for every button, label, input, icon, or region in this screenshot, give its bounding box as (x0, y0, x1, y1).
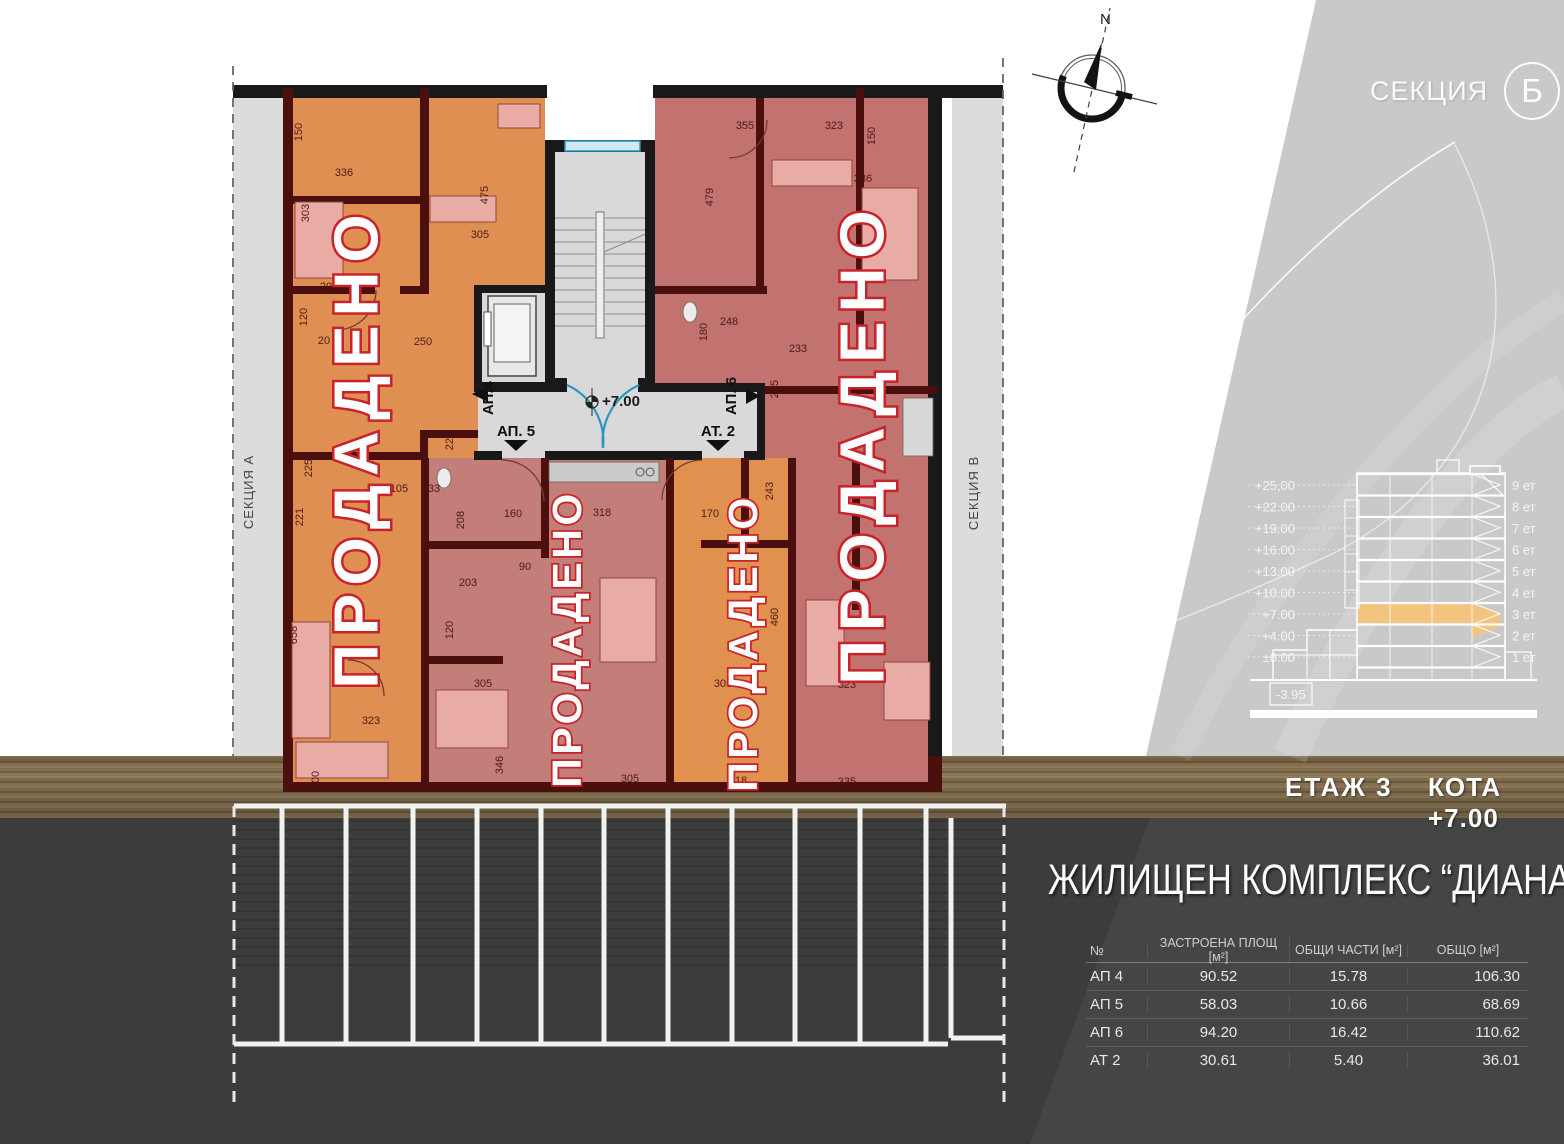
dimension-label: 150 (866, 127, 878, 145)
parking-stalls (234, 806, 1006, 1108)
unit-label-ap6: АП. 6 (723, 377, 740, 415)
total-area: 36.01 (1408, 1052, 1528, 1069)
table-header-row: № ЗАСТРОЕНА ПЛОЩ [м²] ОБЩИ ЧАСТИ [м²] ОБ… (1086, 936, 1528, 962)
total-area: 106.30 (1408, 968, 1528, 985)
drawing-sheet: N СЕКЦИЯ А СЕКЦИЯ В (0, 0, 1564, 1144)
section-floor-label: 2 ет (1512, 629, 1536, 644)
unit-id: АП 4 (1086, 968, 1148, 985)
dimension-label: 335 (838, 776, 856, 788)
dimension-label: 150 (293, 123, 305, 141)
sold-overlay-ap4: ПРОДАДЕНО (323, 205, 392, 688)
built-area: 90.52 (1148, 968, 1290, 985)
common-parts: 15.78 (1290, 968, 1408, 985)
section-elevation-label: ±0.00 (1263, 650, 1295, 665)
section-elevation-label: +13.00 (1255, 564, 1295, 579)
project-title: ЖИЛИЩЕН КОМПЛЕКС “ДИАНА” (1048, 856, 1564, 905)
section-floor-label: 5 ет (1512, 564, 1536, 579)
dimension-label: 336 (854, 173, 872, 185)
dimension-label: 318 (593, 507, 611, 519)
table-row: АП 6 94.20 16.42 110.62 (1086, 1018, 1528, 1046)
section-word: СЕКЦИЯ (1370, 76, 1488, 107)
section-elevation-label: +10.00 (1255, 586, 1295, 601)
section-elevation-label: +7.00 (1262, 607, 1295, 622)
section-floor-label: 8 ет (1512, 500, 1536, 515)
dimension-label: 336 (335, 167, 353, 179)
dimension-label: 203 (459, 577, 477, 589)
north-label: N (1100, 11, 1111, 28)
dimension-label: 208 (455, 511, 467, 529)
total-area: 68.69 (1408, 996, 1528, 1013)
dimension-label: 170 (701, 508, 719, 520)
total-area: 110.62 (1408, 1024, 1528, 1041)
unit-label-at2: АТ. 2 (701, 423, 735, 440)
areas-table: № ЗАСТРОЕНА ПЛОЩ [м²] ОБЩИ ЧАСТИ [м²] ОБ… (1086, 936, 1528, 1074)
built-area: 58.03 (1148, 996, 1290, 1013)
table-row: АП 4 90.52 15.78 106.30 (1086, 962, 1528, 990)
unit-id: АТ 2 (1086, 1052, 1148, 1069)
dimension-label: 479 (704, 188, 716, 206)
common-parts: 16.42 (1290, 1024, 1408, 1041)
section-elevation-label: +16.00 (1255, 543, 1295, 558)
unit-label-ap5: АП. 5 (497, 423, 535, 440)
dimension-label: 228 (444, 432, 456, 450)
dimension-label: 221 (294, 508, 306, 526)
unit-id: АП 6 (1086, 1024, 1148, 1041)
sold-overlay-ap5: ПРОДАДЕНО (544, 490, 590, 788)
col-header-built-area: ЗАСТРОЕНА ПЛОЩ [м²] (1148, 936, 1290, 964)
panel-swoosh-decor (1086, 142, 1564, 756)
section-letter-badge: Б (1504, 62, 1560, 120)
dimension-label: 133 (422, 483, 440, 495)
dimension-label: 248 (720, 316, 738, 328)
floor-number-label: ЕТАЖ 3 (1285, 772, 1393, 803)
section-floor-label: 3 ет (1512, 607, 1536, 622)
dimension-label: 303 (300, 204, 312, 222)
level-marker: +7.00 (602, 393, 640, 410)
table-row: АТ 2 30.61 5.40 36.01 (1086, 1046, 1528, 1074)
section-b-strip-label: СЕКЦИЯ В (966, 456, 981, 530)
section-letter: Б (1521, 72, 1543, 110)
section-elevation-label: +19.00 (1255, 521, 1295, 536)
dimension-label: 305 (621, 773, 639, 785)
dimension-label: 90 (519, 561, 531, 573)
table-row: АП 5 58.03 10.66 68.69 (1086, 990, 1528, 1018)
basement-elevation: -3.95 (1276, 687, 1306, 702)
dimension-label: 233 (789, 343, 807, 355)
section-elevation-label: +4.00 (1262, 629, 1295, 644)
north-compass: N (1032, 8, 1157, 172)
dimension-label: 120 (444, 621, 456, 639)
dimension-label: 475 (479, 186, 491, 204)
section-heading: СЕКЦИЯ Б (1370, 62, 1560, 120)
dimension-label: 305 (471, 229, 489, 241)
dimension-label: 658 (288, 626, 300, 644)
built-area: 94.20 (1148, 1024, 1290, 1041)
col-header-number: № (1086, 943, 1148, 958)
col-header-common-parts: ОБЩИ ЧАСТИ [м²] (1290, 943, 1408, 957)
dimension-label: 225 (303, 459, 315, 477)
common-parts: 5.40 (1290, 1052, 1408, 1069)
section-floor-label: 7 ет (1512, 521, 1536, 536)
section-elevation-label: +22.00 (1255, 500, 1295, 515)
dimension-label: 323 (362, 715, 380, 727)
built-area: 30.61 (1148, 1052, 1290, 1069)
dimension-label: 180 (698, 323, 710, 341)
dimension-label: 460 (769, 608, 781, 626)
section-a-label: СЕКЦИЯ А (241, 455, 256, 529)
highlighted-floor-slab (1357, 604, 1472, 623)
section-floor-label: 4 ет (1512, 586, 1536, 601)
dimension-label: 346 (494, 756, 506, 774)
section-floor-label: 1 ет (1512, 650, 1536, 665)
sold-overlay-at2: ПРОДАДЕНО (720, 494, 766, 792)
dimension-label: 105 (390, 483, 408, 495)
dimension-label: 120 (298, 308, 310, 326)
common-parts: 10.66 (1290, 996, 1408, 1013)
skylight-window (565, 141, 640, 151)
elevator (484, 296, 536, 376)
col-header-total: ОБЩО [м²] (1408, 943, 1528, 957)
dimension-label: 160 (504, 508, 522, 520)
dimension-label: 355 (736, 120, 754, 132)
sold-overlay-ap6: ПРОДАДЕНО (829, 201, 898, 684)
dimension-label: 323 (825, 120, 843, 132)
dimension-label: 250 (414, 336, 432, 348)
elevation-label: КОТА +7.00 (1428, 772, 1564, 834)
section-floor-label: 6 ет (1512, 543, 1536, 558)
unit-id: АП 5 (1086, 996, 1148, 1013)
dimension-label: 305 (474, 678, 492, 690)
dimension-label: 100 (310, 771, 322, 789)
section-floor-label: 9 ет (1512, 478, 1536, 493)
dimension-label: 295 (769, 380, 781, 398)
section-elevation-label: +25,00 (1255, 478, 1295, 493)
